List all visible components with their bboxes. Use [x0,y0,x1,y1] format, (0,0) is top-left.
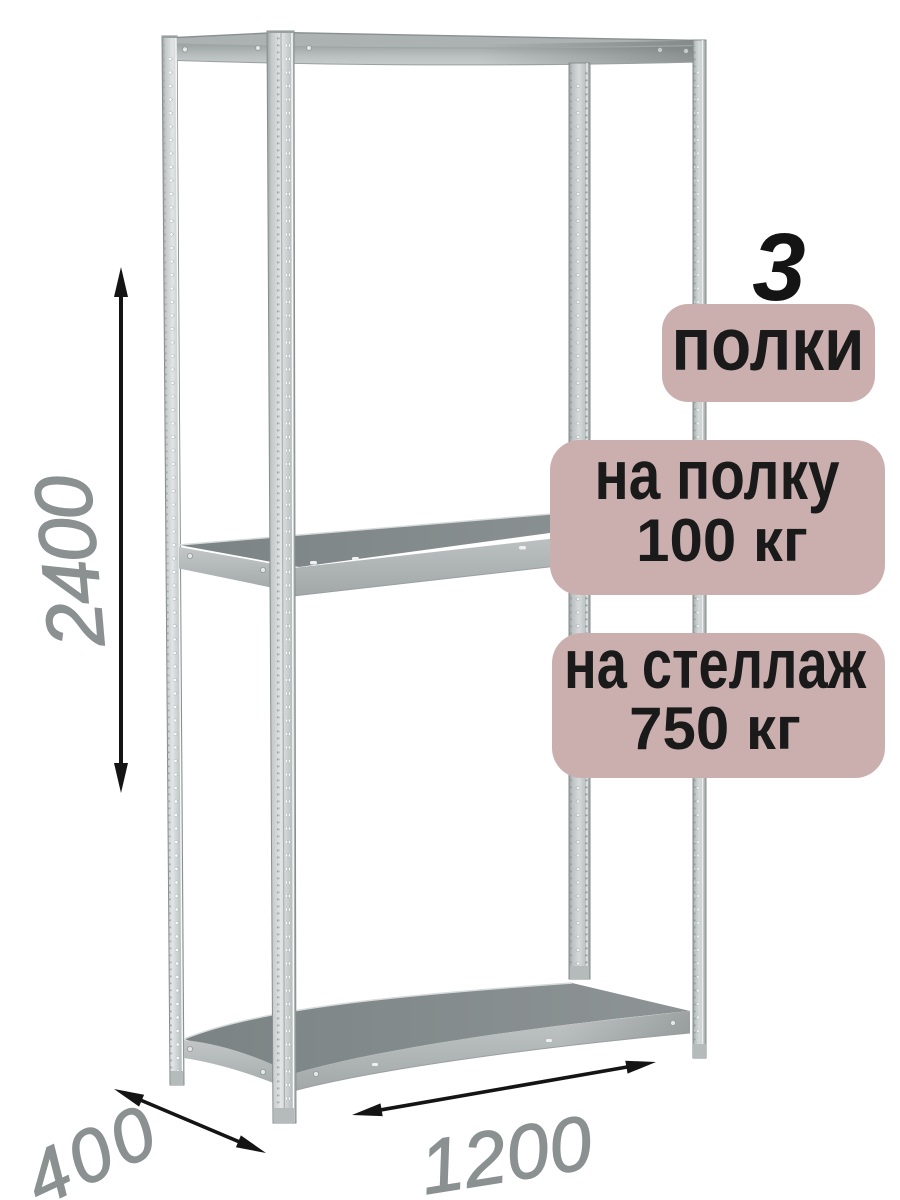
svg-text:2400: 2400 [18,472,122,652]
svg-text:750 кг: 750 кг [629,695,801,762]
svg-text:100 кг: 100 кг [636,507,808,574]
svg-text:на полку: на полку [595,436,840,514]
svg-text:полки: полки [672,302,865,386]
svg-text:на стеллаж: на стеллаж [564,625,867,703]
